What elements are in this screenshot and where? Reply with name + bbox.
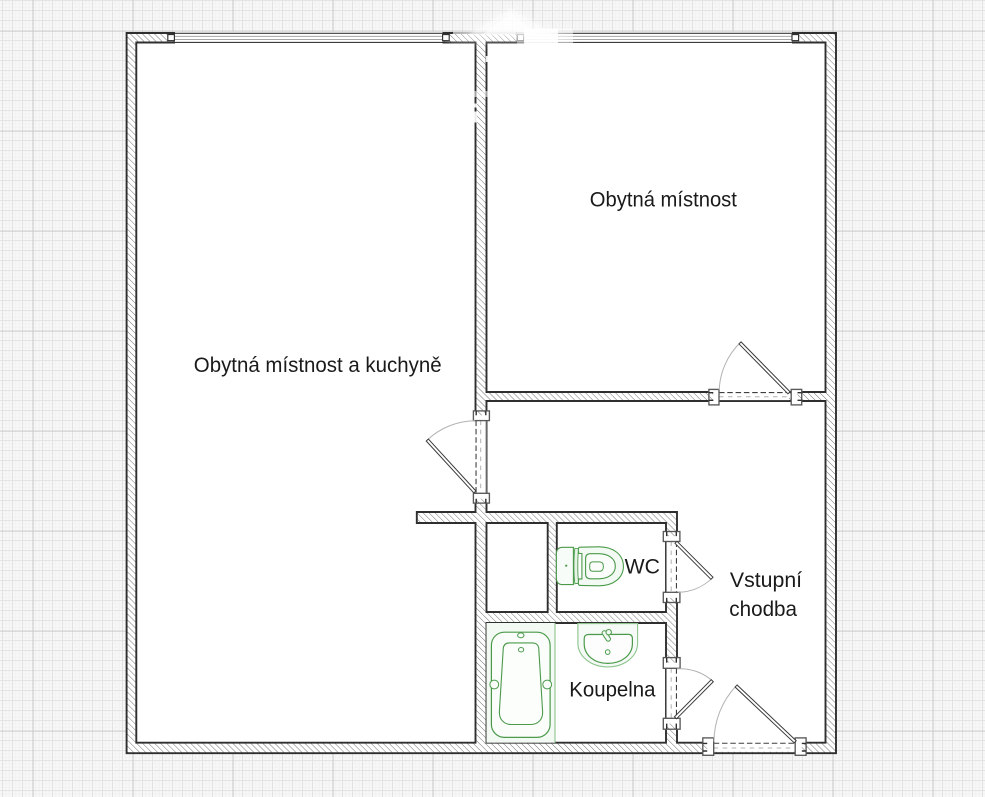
svg-text:Koupelna: Koupelna: [569, 679, 656, 702]
svg-text:Obytná místnost: Obytná místnost: [590, 189, 737, 212]
svg-text:chodba: chodba: [729, 598, 797, 621]
svg-text:Vstupní: Vstupní: [730, 569, 802, 592]
svg-text:Obytná místnost a kuchyně: Obytná místnost a kuchyně: [194, 354, 442, 377]
svg-text:WC: WC: [625, 555, 660, 578]
